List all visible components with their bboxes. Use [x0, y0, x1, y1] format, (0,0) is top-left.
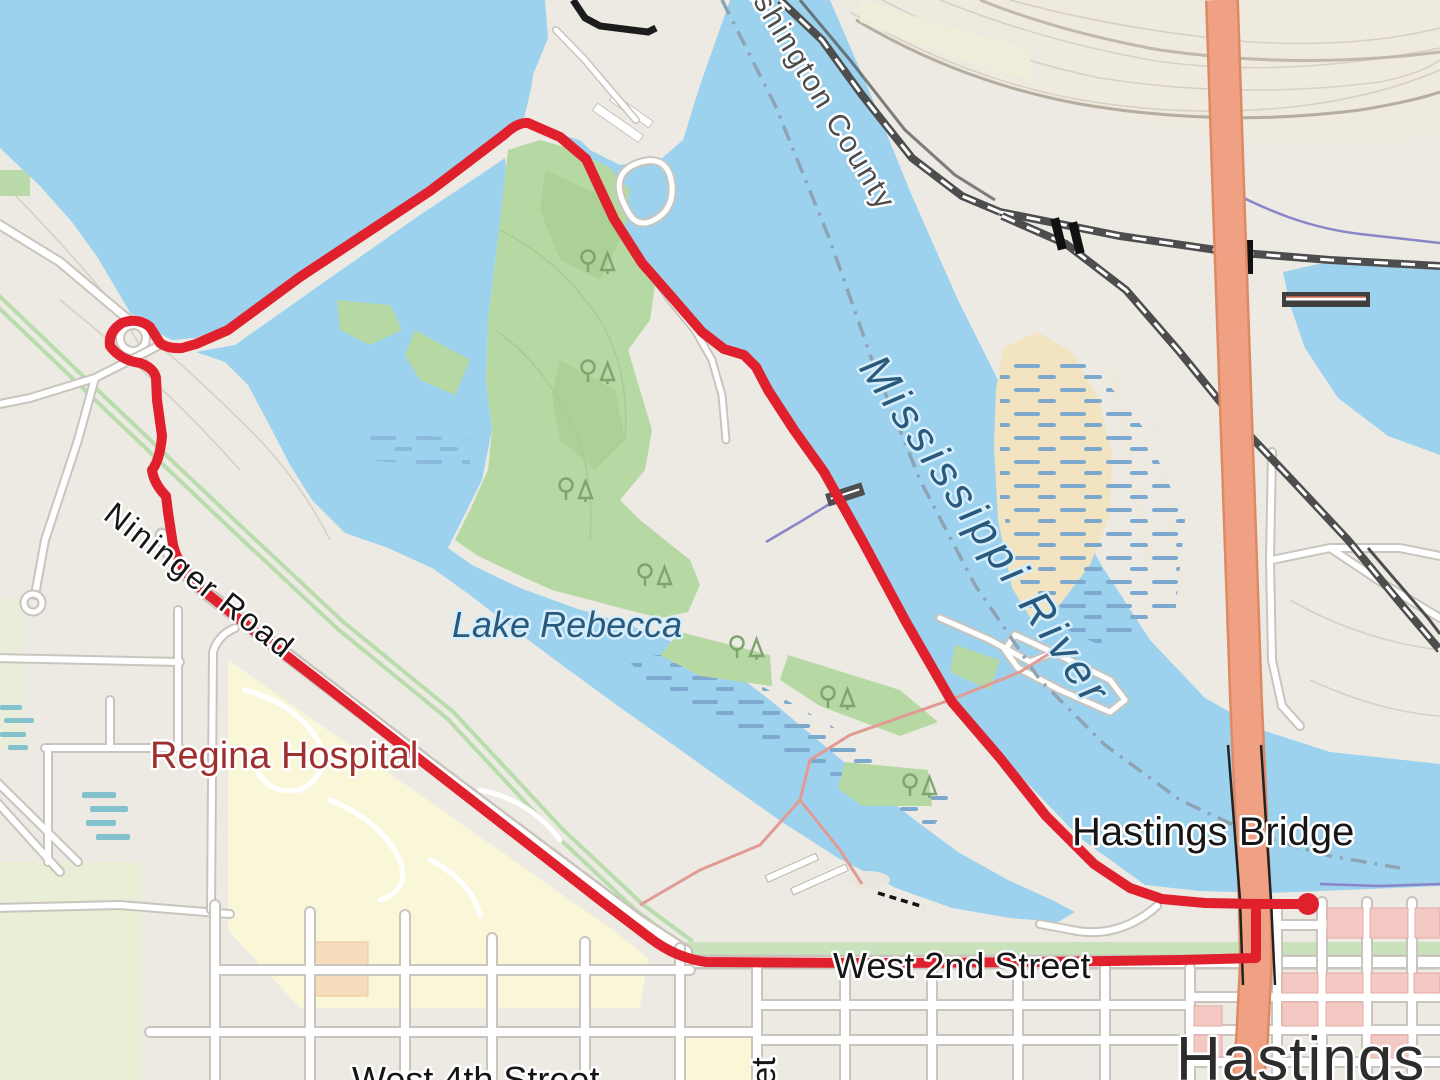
west-4th-street-label: West 4th Street: [352, 1059, 599, 1080]
map-canvas[interactable]: Washington County Mississippi River Lake…: [0, 0, 1440, 1080]
west-2nd-street-label: West 2nd Street: [833, 945, 1090, 986]
lake-label: Lake Rebecca: [452, 604, 682, 645]
route-end-marker[interactable]: [1297, 893, 1319, 915]
city-label: Hastings: [1176, 1025, 1425, 1080]
bridge-label: Hastings Bridge: [1072, 810, 1354, 854]
hospital-label: Regina Hospital: [150, 735, 418, 777]
topo-map: Washington County Mississippi River Lake…: [0, 0, 1440, 1080]
side-street-label: Street: [745, 1057, 783, 1080]
